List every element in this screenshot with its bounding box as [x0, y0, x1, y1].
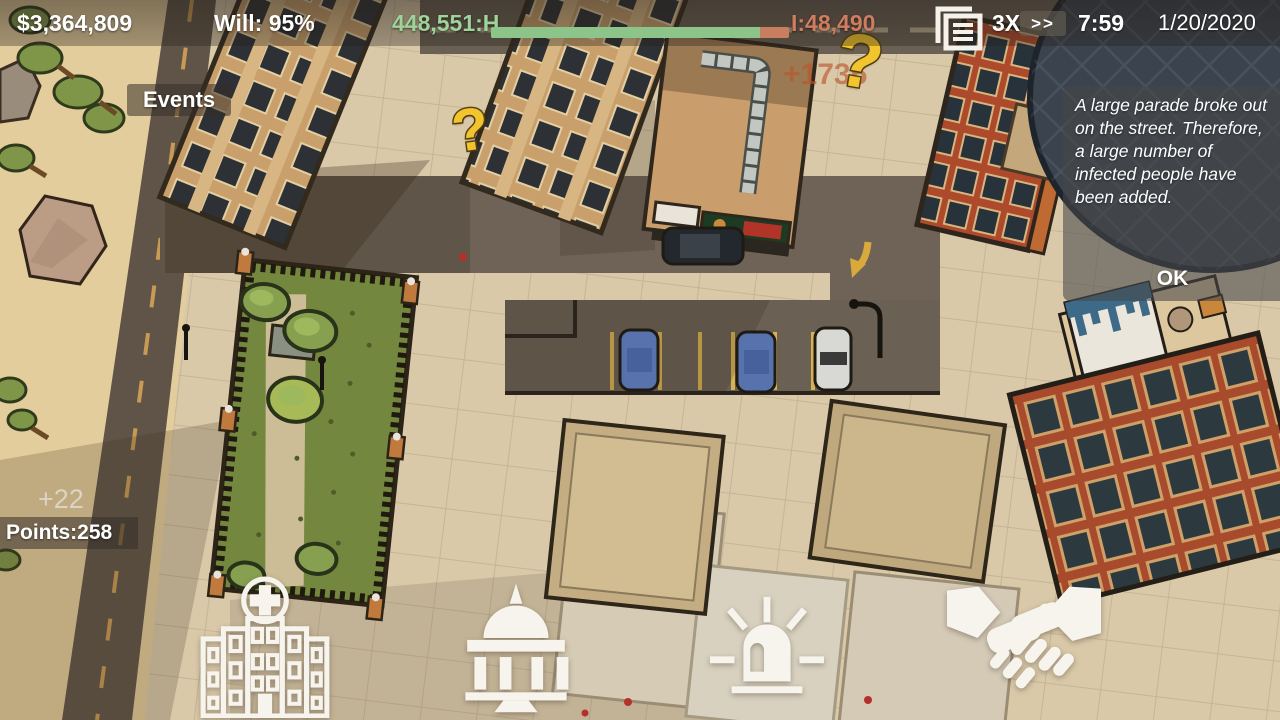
health-bar	[491, 27, 789, 38]
news-reports-button[interactable]	[934, 5, 986, 51]
game-screen: +1735 ? ? $3,364,809 Will: 95% 448,551:H…	[0, 0, 1280, 720]
clock-display: 7:59	[1078, 0, 1124, 46]
hospital-button[interactable]	[198, 576, 332, 718]
diplomacy-button[interactable]	[945, 580, 1103, 700]
government-button[interactable]	[452, 582, 580, 714]
money-display: $3,364,809	[17, 0, 132, 46]
date-display: 1/20/2020	[1158, 0, 1256, 46]
government-icon	[452, 582, 580, 714]
health-bar-healthy	[491, 27, 760, 38]
event-dialog: A large parade broke out on the street. …	[1063, 86, 1280, 301]
infected-count: I:48,490	[791, 0, 875, 46]
top-hud-bar: $3,364,809 Will: 95% 448,551:H I:48,490 …	[0, 0, 1280, 46]
events-button[interactable]: Events	[127, 84, 231, 116]
speed-display[interactable]: 3X	[992, 0, 1020, 46]
question-mark-event-marker[interactable]: ?	[448, 98, 493, 163]
healthy-count: 448,551:H	[392, 0, 499, 46]
siren-icon	[708, 585, 826, 707]
points-gain-float: +22	[38, 484, 84, 515]
emergency-button[interactable]	[708, 585, 826, 707]
speed-up-button[interactable]: >>	[1020, 11, 1066, 36]
hospital-icon	[198, 576, 332, 718]
points-display: Points:258	[0, 517, 138, 549]
will-display: Will: 95%	[214, 0, 315, 46]
ok-button[interactable]: OK	[1075, 265, 1270, 293]
handshake-icon	[945, 580, 1103, 700]
news-icon	[934, 5, 986, 51]
event-message: A large parade broke out on the street. …	[1075, 94, 1270, 265]
